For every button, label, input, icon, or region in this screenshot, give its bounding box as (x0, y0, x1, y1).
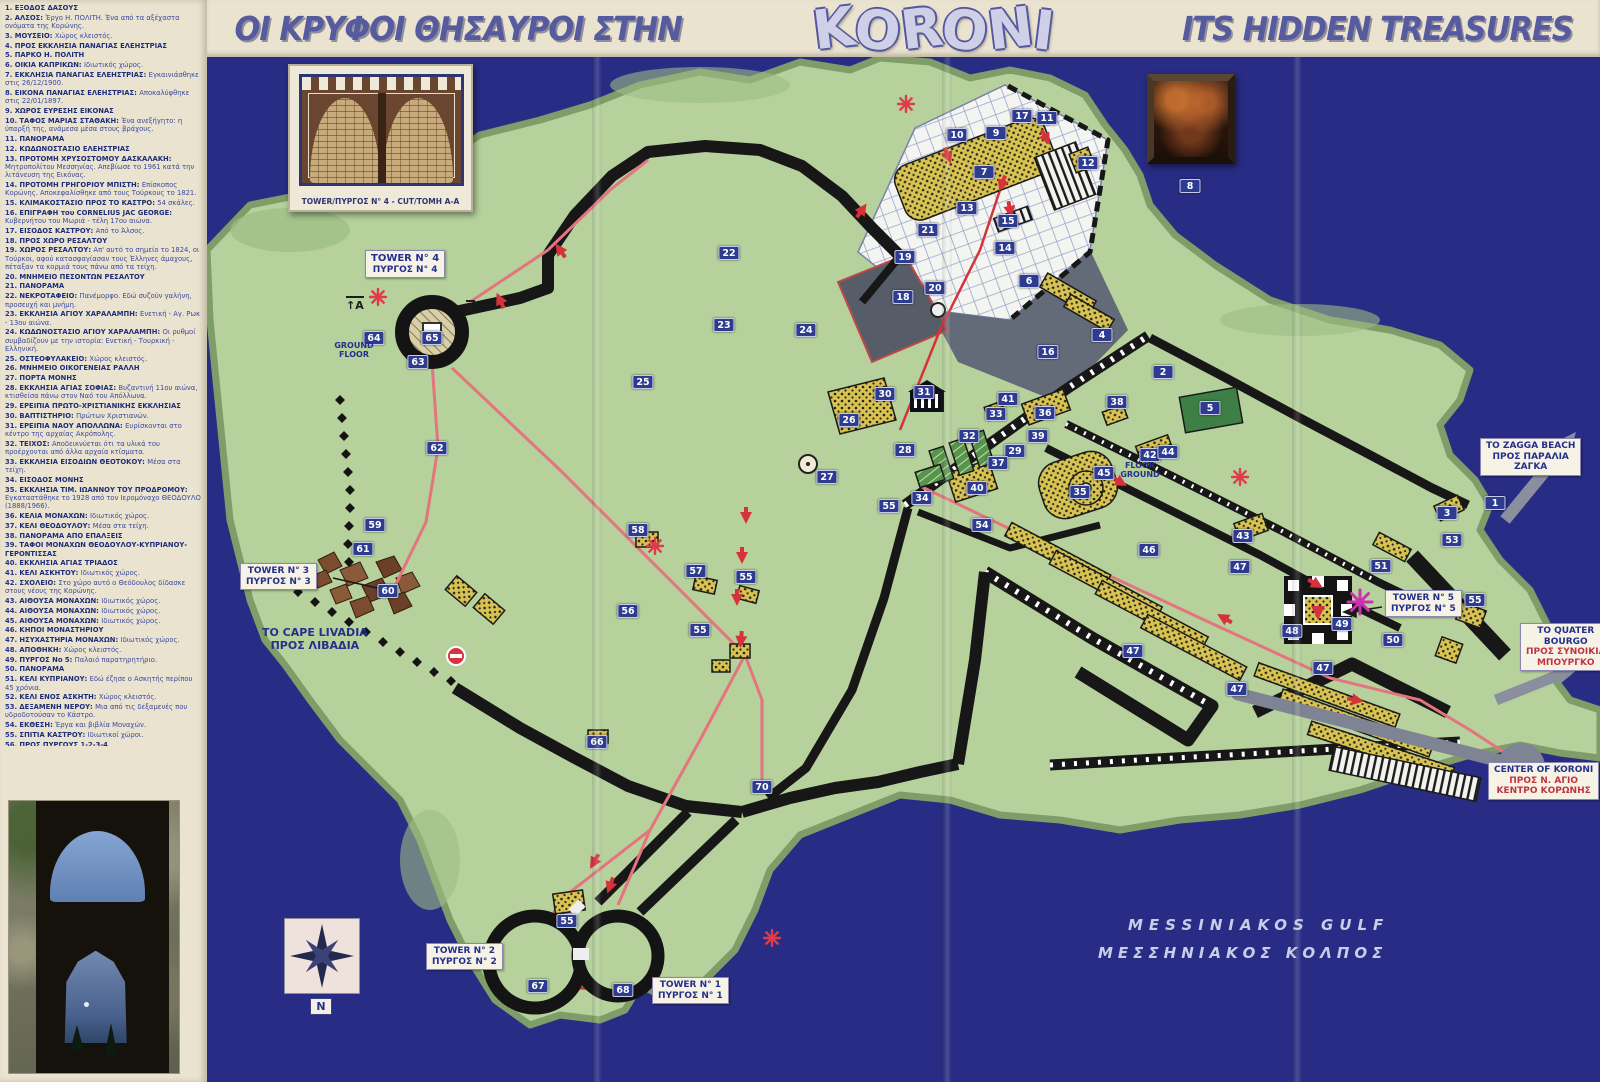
map-marker-33: 33 (985, 407, 1006, 421)
map-marker-50: 50 (1382, 633, 1403, 647)
section-marker-a-right: A (466, 300, 475, 316)
map-marker-43: 43 (1232, 529, 1253, 543)
map-marker-25: 25 (632, 375, 653, 389)
legend-item-24: 24. ΚΩΔΩΝΟΣΤΑΣΙΟ ΑΓΙΟΥ ΧΑΡΑΛΑΜΠΗ: Οι ρυθ… (5, 328, 202, 353)
map-marker-4: 4 (1092, 328, 1113, 342)
map-marker-47: 47 (1312, 661, 1333, 675)
map-marker-48: 48 (1281, 624, 1302, 638)
legend-item-54: 54. ΕΚΘΕΣΗ: Έργα και βιβλία Μοναχών. (5, 721, 202, 729)
panagia-icon-photo (1147, 74, 1235, 164)
legend-item-34: 34. ΕΙΣΟΔΟΣ ΜΟΝΗΣ (5, 476, 202, 484)
map-marker-22: 22 (718, 246, 739, 260)
castle-gate-photo (8, 800, 180, 1074)
sea-label-en: MESSINIAKOS GULF (1128, 916, 1389, 934)
map-marker-68: 68 (612, 983, 633, 997)
legend-item-9: 9. ΧΩΡΟΣ ΕΥΡΕΣΗΣ ΕΙΚΟΝΑΣ (5, 107, 202, 115)
map-marker-62: 62 (426, 441, 447, 455)
map-marker-17: 17 (1011, 109, 1032, 123)
map-marker-53: 53 (1441, 533, 1462, 547)
map-marker-26: 26 (838, 413, 859, 427)
legend-item-32: 32. ΤΕΙΧΟΣ: Αποδεικνύεται ότι τα υλικά τ… (5, 440, 202, 457)
map-marker-55: 55 (689, 623, 710, 637)
map-marker-13: 13 (956, 201, 977, 215)
map-marker-2: 2 (1153, 365, 1174, 379)
map-poster: ΟΙ ΚΡΥΦΟΙ ΘΗΣΑΥΡΟΙ ΣΤΗΝ KORONI ITS HIDDE… (0, 0, 1600, 1082)
legend-item-31: 31. ΕΡΕΙΠΙΑ ΝΑΟΥ ΑΠΟΛΛΩΝΑ: Ευρίσκονται σ… (5, 422, 202, 439)
legend-item-53: 53. ΔΕΞΑΜΕΝΗ ΝΕΡΟΥ: Μια από τις δεξαμενέ… (5, 703, 202, 720)
map-marker-38: 38 (1106, 395, 1127, 409)
map-marker-15: 15 (997, 214, 1018, 228)
map-marker-32: 32 (958, 429, 979, 443)
map-marker-47: 47 (1122, 644, 1143, 658)
center-of-koroni-label: CENTER OF KORONI ΠΡΟΣ Ν. ΑΓΙΟΚΕΝΤΡΟ ΚΟΡΩ… (1488, 762, 1599, 800)
legend-item-18: 18. ΠΡΟΣ ΧΩΡΟ ΡΕΣΑΛΤΟΥ (5, 237, 202, 245)
legend-item-8: 8. ΕΙΚΟΝΑ ΠΑΝΑΓΙΑΣ ΕΛΕΗΣΤΡΙΑΣ: Αποκαλύφθ… (5, 89, 202, 106)
map-marker-30: 30 (874, 387, 895, 401)
section-marker-a-left: ↑A (346, 296, 364, 312)
legend-item-21: 21. ΠΑΝΟΡΑΜΑ (5, 282, 202, 290)
map-marker-70: 70 (751, 780, 772, 794)
map-marker-67: 67 (527, 979, 548, 993)
legend-item-19: 19. ΧΩΡΟΣ ΡΕΣΑΛΤΟΥ: Απ' αυτό το σημείο τ… (5, 246, 202, 271)
map-marker-56: 56 (617, 604, 638, 618)
legend-item-7: 7. ΕΚΚΛΗΣΙΑ ΠΑΝΑΓΙΑΣ ΕΛΕΗΣΤΡΙΑΣ: Εγκαινι… (5, 71, 202, 88)
map-marker-10: 10 (946, 128, 967, 142)
legend-item-30: 30. ΒΑΠΤΙΣΤΗΡΙΟ: Πρώτων Χριστιανών. (5, 412, 202, 420)
map-marker-58: 58 (627, 523, 648, 537)
legend-item-46: 46. ΚΗΠΟΙ ΜΟΝΑΣΤΗΡΙΟΥ (5, 626, 202, 634)
map-marker-28: 28 (894, 443, 915, 457)
tower1-label: TOWER N° 1ΠΥΡΓΟΣ N° 1 (652, 977, 729, 1004)
legend-item-28: 28. ΕΚΚΛΗΣΙΑ ΑΓΙΑΣ ΣΟΦΙΑΣ: Βυζαντινή 11ο… (5, 384, 202, 401)
legend-item-50: 50. ΠΑΝΟΡΑΜΑ (5, 665, 202, 673)
legend-item-47: 47. ΗΣΥΧΑΣΤΗΡΙΑ ΜΟΝΑΧΩΝ: Ιδιωτικός χώρος… (5, 636, 202, 644)
compass-north-label: N (310, 998, 332, 1015)
map-marker-35: 35 (1069, 485, 1090, 499)
legend-item-36: 36. ΚΕΛΙΑ ΜΟΝΑΧΩΝ: Ιδιωτικός χώρος. (5, 512, 202, 520)
map-marker-3: 3 (1437, 506, 1458, 520)
title-greek: ΟΙ ΚΡΥΦΟΙ ΘΗΣΑΥΡΟΙ ΣΤΗΝ (234, 9, 681, 48)
tree-silhouette (70, 1025, 84, 1051)
legend-item-1: 1. ΕΞΟΔΟΣ ΔΑΣΟΥΣ (5, 4, 202, 12)
map-marker-27: 27 (816, 470, 837, 484)
legend-item-26: 26. ΜΝΗΜΕΙΟ ΟΙΚΟΓΕΝΕΙΑΣ ΡΑΛΛΗ (5, 364, 202, 372)
map-marker-21: 21 (917, 223, 938, 237)
tower3-label: TOWER N° 3ΠΥΡΓΟΣ N° 3 (240, 563, 317, 590)
title-english: ITS HIDDEN TREASURES (1182, 9, 1573, 48)
map-marker-46: 46 (1138, 543, 1159, 557)
legend-item-40: 40. ΕΚΚΛΗΣΙΑ ΑΓΙΑΣ ΤΡΙΑΔΟΣ (5, 559, 202, 567)
legend-sidebar: 1. ΕΞΟΔΟΣ ΔΑΣΟΥΣ2. ΑΛΣΟΣ: Έργο Η. ΠΟΛΙΤΗ… (0, 0, 207, 1082)
legend-item-51: 51. ΚΕΛΙ ΚΥΠΡΙΑΝΟΥ: Εδώ έζησε ο Ασκητής … (5, 675, 202, 692)
sea-label-gr: ΜΕΣΣΗΝΙΑΚΟΣ ΚΟΛΠΟΣ (1098, 944, 1387, 962)
legend-item-49: 49. ΠΥΡΓΟΣ Νο 5: Παλαιό παρατηρητήριο. (5, 656, 202, 664)
tree-silhouette (104, 1023, 118, 1057)
legend-list: 1. ΕΞΟΔΟΣ ΔΑΣΟΥΣ2. ΑΛΣΟΣ: Έργο Η. ΠΟΛΙΤΗ… (5, 4, 202, 746)
center-pillar (378, 93, 386, 183)
legend-item-13: 13. ΠΡΟΤΟΜΗ ΧΡΥΣΟΣΤΟΜΟΥ ΔΑΣΚΑΛΑΚΗ: Μητρο… (5, 155, 202, 180)
legend-item-14: 14. ΠΡΟΤΟΜΗ ΓΡΗΓΟΡΙΟΥ ΜΠΙΣΤΗ: Επίσκοπος … (5, 181, 202, 198)
legend-item-29: 29. ΕΡΕΙΠΙΑ ΠΡΩΤΟ-ΧΡΙΣΤΙΑΝΙΚΗΣ ΕΚΚΛΗΣΙΑΣ (5, 402, 202, 410)
map-marker-39: 39 (1027, 429, 1048, 443)
title-bar: ΟΙ ΚΡΥΦΟΙ ΘΗΣΑΥΡΟΙ ΣΤΗΝ KORONI ITS HIDDE… (205, 0, 1600, 57)
compass-rose (284, 918, 360, 994)
map-marker-19: 19 (894, 250, 915, 264)
map-marker-49: 49 (1331, 617, 1352, 631)
map-marker-57: 57 (685, 564, 706, 578)
legend-item-10: 10. ΤΑΦΟΣ ΜΑΡΙΑΣ ΣΤΑΘΑΚΗ: Ένα ανεξήγητο:… (5, 117, 202, 134)
legend-item-45: 45. ΑΙΘΟΥΣΑ ΜΟΝΑΧΩΝ: Ιδιωτικός χώρος. (5, 617, 202, 625)
map-marker-55: 55 (735, 570, 756, 584)
legend-item-4: 4. ΠΡΟΣ ΕΚΚΛΗΣΙΑ ΠΑΝΑΓΙΑΣ ΕΛΕΗΣΤΡΙΑΣ (5, 42, 202, 50)
map-marker-45: 45 (1093, 466, 1114, 480)
map-marker-34: 34 (911, 491, 932, 505)
map-marker-37: 37 (987, 456, 1008, 470)
legend-item-35: 35. ΕΚΚΛΗΣΙΑ ΤΙΜ. ΙΩΑΝΝΟΥ ΤΟΥ ΠΡΟΔΡΟΜΟΥ:… (5, 486, 202, 511)
map-marker-55: 55 (878, 499, 899, 513)
legend-item-33: 33. ΕΚΚΛΗΣΙΑ ΕΙΣΟΔΙΩΝ ΘΕΟΤΟΚΟΥ: Μέσα στα… (5, 458, 202, 475)
legend-item-42: 42. ΣΧΟΛΕΙΟ: Στο χώρο αυτό ο Θεόδουλος δ… (5, 579, 202, 596)
map-marker-23: 23 (713, 318, 734, 332)
map-marker-8: 8 (1180, 179, 1201, 193)
map-marker-12: 12 (1077, 156, 1098, 170)
legend-item-25: 25. ΟΣΤΕΟΦΥΛΑΚΕΙΟ: Χώρος κλειστός. (5, 355, 202, 363)
legend-item-2: 2. ΑΛΣΟΣ: Έργο Η. ΠΟΛΙΤΗ. Ένα από τα αξέ… (5, 14, 202, 31)
legend-item-20: 20. ΜΝΗΜΕΙΟ ΠΕΣΟΝΤΩΝ ΡΕΣΑΛΤΟΥ (5, 273, 202, 281)
map-marker-51: 51 (1370, 559, 1391, 573)
legend-item-16: 16. ΕΠΙΓΡΑΦΗ του CORNELIUS JAC GEORGE: Κ… (5, 209, 202, 226)
legend-item-11: 11. ΠΑΝΟΡΑΜΑ (5, 135, 202, 143)
map-marker-7: 7 (974, 165, 995, 179)
legend-item-27: 27. ΠΟΡΤΑ ΜΟΝΗΣ (5, 374, 202, 382)
tower4-label: TOWER N° 4ΠΥΡΓΟΣ N° 4 (365, 250, 445, 278)
tower2-label: TOWER N° 2ΠΥΡΓΟΣ N° 2 (426, 943, 503, 970)
cape-livadia-label: TO CAPE LIVADIAΠΡΟΣ ΛΙΒΑΔΙΑ (262, 626, 368, 652)
map-marker-6: 6 (1019, 274, 1040, 288)
map-marker-55: 55 (1464, 593, 1485, 607)
map-marker-18: 18 (892, 290, 913, 304)
ground-floor-label: GROUND FLOOR (332, 342, 376, 360)
map-marker-66: 66 (586, 735, 607, 749)
map-marker-47: 47 (1226, 682, 1247, 696)
legend-item-48: 48. ΑΠΟΘΗΚΗ: Χώρος κλειστός. (5, 646, 202, 654)
legend-item-3: 3. ΜΟΥΣΕΙΟ: Χώρος κλειστός. (5, 32, 202, 40)
legend-item-38: 38. ΠΑΝΟΡΑΜΑ ΑΠΟ ΕΠΑΛΞΕΙΣ (5, 532, 202, 540)
legend-item-22: 22. ΝΕΚΡΟΤΑΦΕΙΟ: Πανέμορφο. Εδώ συζούν γ… (5, 292, 202, 309)
map-marker-40: 40 (966, 481, 987, 495)
map-marker-54: 54 (971, 518, 992, 532)
map-marker-55: 55 (556, 914, 577, 928)
map-marker-31: 31 (913, 385, 934, 399)
legend-item-37: 37. ΚΕΛΙ ΘΕΟΔΟΥΛΟΥ: Μέσα στα τείχη. (5, 522, 202, 530)
legend-item-15: 15. ΚΛΙΜΑΚΟΣΤΑΣΙΟ ΠΡΟΣ ΤΟ ΚΑΣΤΡΟ: 54 σκά… (5, 199, 202, 207)
legend-item-52: 52. ΚΕΛΙ ΕΝΟΣ ΑΣΚΗΤΗ: Χώρος κλειστός. (5, 693, 202, 701)
zagga-beach-label: TO ZAGGA BEACHΠΡΟΣ ΠΑΡΑΛΙΑΖΑΓΚΑ (1480, 438, 1581, 476)
legend-item-44: 44. ΑΙΘΟΥΣΑ ΜΟΝΑΧΩΝ: Ιδιωτικός χώρος. (5, 607, 202, 615)
quater-bourgo-label: TO QUATERBOURGO ΠΡΟΣ ΣΥΝΟΙΚΙΑΜΠΟΥΡΓΚΟ (1520, 623, 1600, 671)
map-marker-36: 36 (1034, 406, 1055, 420)
map-marker-11: 11 (1036, 111, 1057, 125)
koroni-logo: KORONI (813, 0, 1054, 60)
map-marker-9: 9 (986, 126, 1007, 140)
map-marker-65: 65 (421, 331, 442, 345)
legend-item-55: 55. ΣΠΙΤΙΑ ΚΑΣΤΡΟΥ: Ιδιωτικοί χώροι. (5, 731, 202, 739)
map-marker-59: 59 (364, 518, 385, 532)
legend-item-5: 5. ΠΑΡΚΟ Η. ΠΟΛΙΤΗ (5, 51, 202, 59)
legend-item-6: 6. ΟΙΚΙΑ ΚΑΠΡΙΚΩΝ: Ιδιωτικός χώρος. (5, 61, 202, 69)
map-marker-16: 16 (1037, 345, 1058, 359)
legend-item-56: 56. ΠΡΟΣ ΠΥΡΓΟΥΣ 1-2-3-4 (5, 741, 202, 746)
map-marker-47: 47 (1229, 560, 1250, 574)
legend-item-12: 12. ΚΩΔΩΝΟΣΤΑΣΙΟ ΕΛΕΗΣΤΡΙΑΣ (5, 145, 202, 153)
legend-item-39: 39. ΤΑΦΟΙ ΜΟΝΑΧΩΝ ΘΕΟΔΟΥΛΟΥ-ΚΥΠΡΙΑΝΟΥ-ΓΕ… (5, 541, 202, 558)
map-marker-20: 20 (924, 281, 945, 295)
tower4-drawing (299, 74, 464, 186)
tower5-label: TOWER N° 5ΠΥΡΓΟΣ N° 5 (1385, 590, 1462, 617)
map-marker-1: 1 (1485, 496, 1506, 510)
map-marker-24: 24 (795, 323, 816, 337)
map-marker-41: 41 (997, 392, 1018, 406)
legend-item-43: 43. ΑΙΘΟΥΣΑ ΜΟΝΑΧΩΝ: Ιδιωτικός χώρος. (5, 597, 202, 605)
legend-item-41: 41. ΚΕΛΙ ΑΣΚΗΤΟΥ: Ιδιωτικός χώρος. (5, 569, 202, 577)
inset-caption: TOWER/ΠΥΡΓΟΣ N° 4 - CUT/ΤΟΜΗ A-A (290, 197, 471, 206)
map-marker-63: 63 (407, 355, 428, 369)
floor-ground-label: FLOOR GROUND (1118, 462, 1162, 480)
legend-item-17: 17. ΕΙΣΟΔΟΣ ΚΑΣΤΡΟΥ: Από το Άλσος. (5, 227, 202, 235)
map-marker-5: 5 (1200, 401, 1221, 415)
legend-item-23: 23. ΕΚΚΛΗΣΙΑ ΑΓΙΟΥ ΧΑΡΑΛΑΜΠΗ: Ενετική - … (5, 310, 202, 327)
crenellation-strip (302, 77, 461, 90)
map-marker-60: 60 (377, 584, 398, 598)
tower4-section-inset: TOWER/ΠΥΡΓΟΣ N° 4 - CUT/ΤΟΜΗ A-A (288, 64, 473, 212)
map-marker-44: 44 (1157, 445, 1178, 459)
map-marker-61: 61 (352, 542, 373, 556)
map-marker-14: 14 (994, 241, 1015, 255)
